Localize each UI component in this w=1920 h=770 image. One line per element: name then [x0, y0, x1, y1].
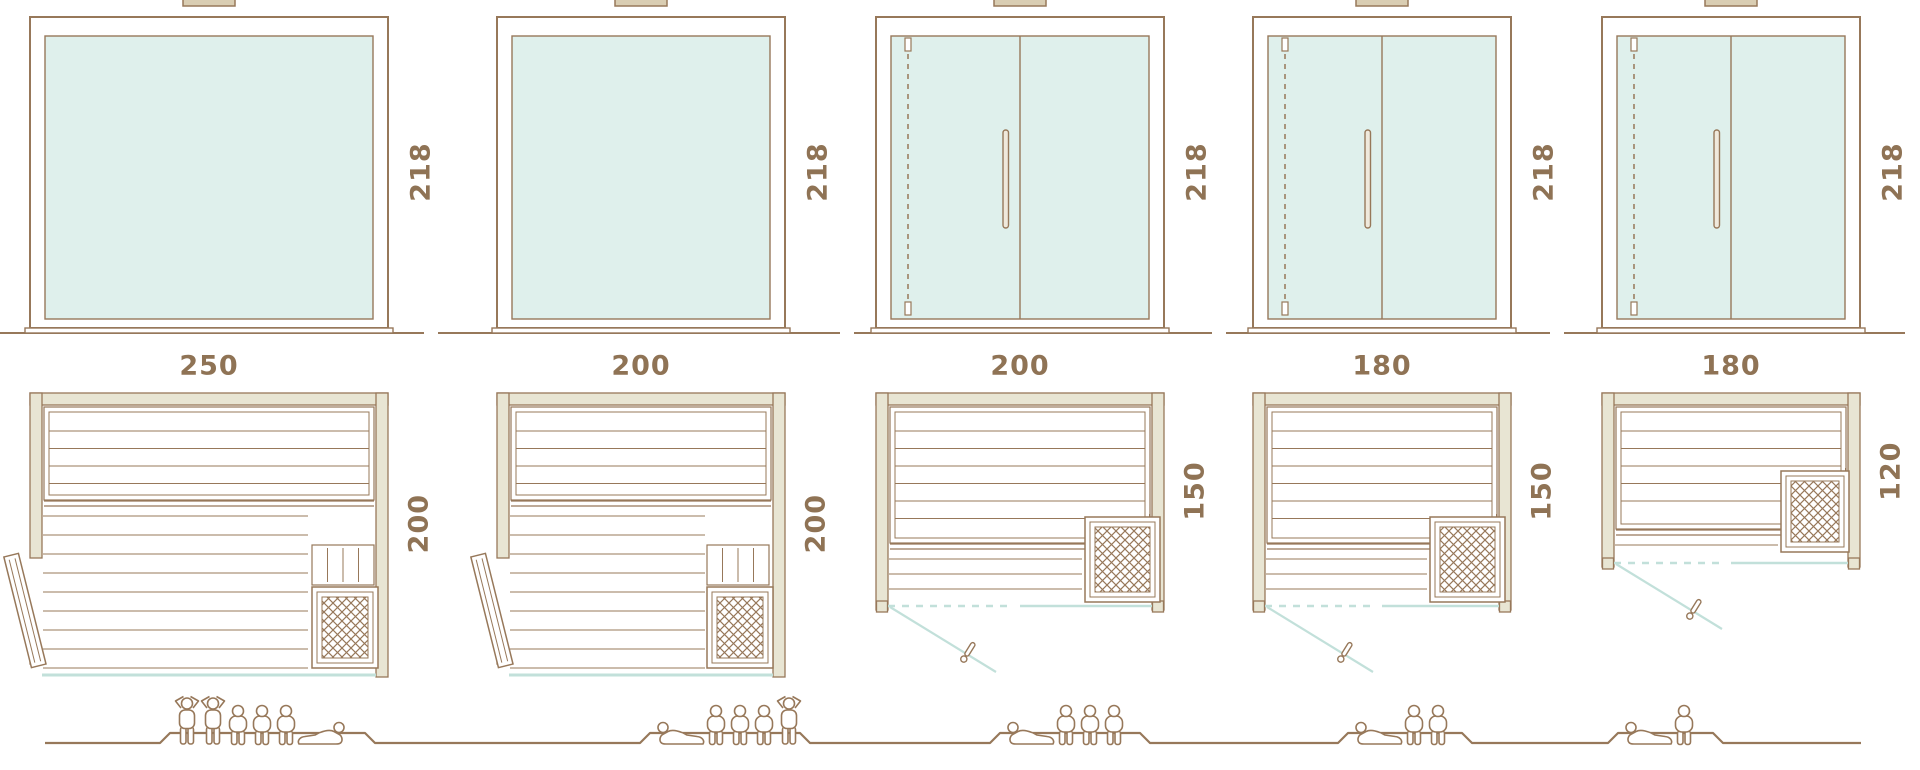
left-wall: [30, 393, 42, 558]
back-wall: [30, 393, 388, 405]
back-wall: [1253, 393, 1511, 405]
elevation-base: [492, 328, 790, 333]
depth-dimension-label: 200: [801, 494, 832, 553]
sauna-250x200-elevation: 250218: [25, 0, 437, 382]
person-standing-icon: [176, 697, 199, 745]
height-dimension-label: 218: [803, 142, 834, 201]
width-dimension-label: 200: [611, 351, 670, 382]
depth-dimension-label: 150: [1180, 461, 1211, 520]
wall-end-cap: [1849, 558, 1860, 569]
back-wall: [1602, 393, 1860, 405]
sauna-200x150-elevation: 200218: [871, 0, 1213, 382]
roof-stub: [994, 0, 1046, 6]
back-wall: [876, 393, 1164, 405]
person-sitting-icon: [278, 706, 295, 745]
person-sitting-icon: [1430, 706, 1447, 745]
person-standing-icon: [778, 697, 801, 745]
sauna-200x200-elevation: 200218: [492, 0, 834, 382]
elevation-base: [1597, 328, 1865, 333]
person-sitting-icon: [1406, 706, 1423, 745]
width-dimension-label: 180: [1701, 351, 1760, 382]
back-bench-frame: [511, 407, 771, 500]
roof-stub: [1705, 0, 1757, 6]
door-swing-line: [1267, 607, 1373, 672]
back-bench-frame: [44, 407, 374, 500]
sauna-250x200-plan: 200: [4, 393, 435, 677]
sauna-200x150-plan: 150: [876, 393, 1211, 672]
sauna-diagram-canvas: 2502182002002182002002181501802181501802…: [0, 0, 1920, 770]
person-sitting-icon: [732, 706, 749, 745]
person-standing-icon: [202, 697, 225, 745]
sauna-180x150-plan: 150: [1253, 393, 1558, 672]
back-wall: [497, 393, 785, 405]
wood-door-open: [4, 553, 46, 667]
sauna-180x120-capacity-group: [1626, 706, 1693, 745]
width-dimension-label: 200: [990, 351, 1049, 382]
wall-end-cap: [1254, 601, 1265, 612]
wall-end-cap: [877, 601, 888, 612]
hinge-top: [905, 38, 911, 51]
sauna-200x200-plan: 200: [471, 393, 832, 677]
glass-front: [512, 36, 770, 319]
depth-dimension-label: 120: [1876, 442, 1907, 501]
hinge-top: [1631, 38, 1637, 51]
height-dimension-label: 218: [1182, 142, 1213, 201]
sauna-size-diagram: 2502182002002182002002181501802181501802…: [0, 0, 1920, 770]
person-sitting-icon: [1106, 706, 1123, 745]
person-sitting-icon: [1676, 706, 1693, 745]
roof-stub: [615, 0, 667, 6]
door-swing-line: [1616, 564, 1722, 629]
heater-grille: [322, 597, 368, 658]
door-swing-line: [890, 607, 996, 672]
heater-grille: [1095, 527, 1150, 592]
sauna-200x150-capacity-group: [1008, 706, 1123, 745]
person-sitting-icon: [708, 706, 725, 745]
left-wall: [1253, 393, 1265, 610]
person-sitting-icon: [254, 706, 271, 745]
person-sitting-icon: [1082, 706, 1099, 745]
sauna-180x120-plan: 120: [1602, 393, 1907, 629]
wood-door-open: [471, 553, 513, 667]
elevation-base: [25, 328, 393, 333]
right-wall: [1848, 393, 1860, 567]
back-bench-inner: [516, 412, 766, 495]
left-wall: [876, 393, 888, 610]
elevation-base: [1248, 328, 1516, 333]
door-handle: [1365, 130, 1371, 228]
hinge-bottom: [1282, 302, 1288, 315]
heater-grille: [717, 597, 763, 658]
heater-grille: [1791, 481, 1839, 542]
left-wall: [1602, 393, 1614, 567]
hinge-bottom: [905, 302, 911, 315]
sauna-180x150-elevation: 180218: [1248, 0, 1560, 382]
hinge-bottom: [1631, 302, 1637, 315]
door-handle: [1003, 130, 1009, 228]
roof-stub: [183, 0, 235, 6]
hinge-top: [1282, 38, 1288, 51]
height-dimension-label: 218: [1878, 142, 1909, 201]
height-dimension-label: 218: [1529, 142, 1560, 201]
glass-front: [45, 36, 373, 319]
height-dimension-label: 218: [406, 142, 437, 201]
capacity-row: [45, 697, 1861, 745]
door-handle: [1714, 130, 1720, 228]
wall-end-cap: [1603, 558, 1614, 569]
depth-dimension-label: 200: [404, 494, 435, 553]
sauna-180x120-elevation: 180218: [1597, 0, 1909, 382]
right-wall: [773, 393, 785, 677]
sauna-180x150-capacity-group: [1356, 706, 1447, 745]
left-wall: [497, 393, 509, 558]
roof-stub: [1356, 0, 1408, 6]
person-sitting-icon: [230, 706, 247, 745]
back-bench-inner: [49, 412, 369, 495]
sauna-200x200-capacity-group: [658, 697, 801, 745]
heater-grille: [1440, 527, 1495, 592]
person-sitting-icon: [756, 706, 773, 745]
person-sitting-icon: [1058, 706, 1075, 745]
elevation-base: [871, 328, 1169, 333]
width-dimension-label: 250: [179, 351, 238, 382]
depth-dimension-label: 150: [1527, 461, 1558, 520]
width-dimension-label: 180: [1352, 351, 1411, 382]
sauna-250x200-capacity-group: [176, 697, 345, 745]
